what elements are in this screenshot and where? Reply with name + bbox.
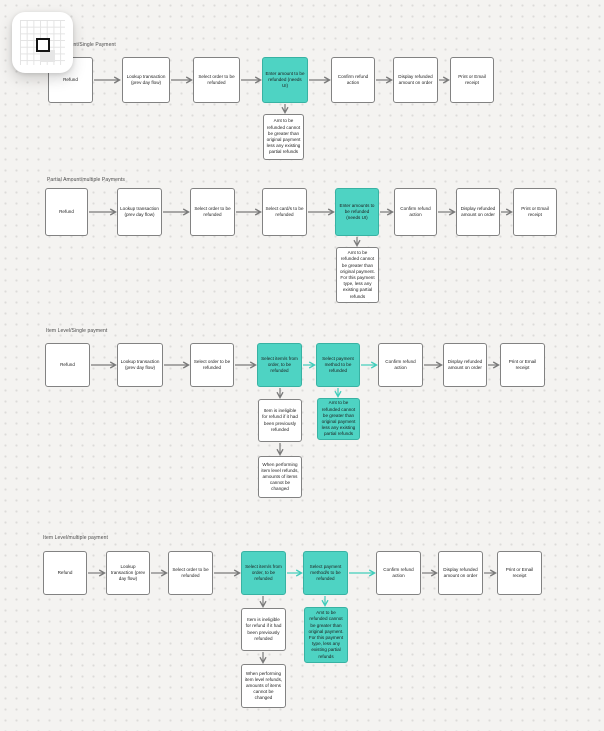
flow-node[interactable]: Refund [45,343,90,387]
note-node-highlighted[interactable]: Amt to be refunded cannot be greater tha… [317,398,360,440]
flow-node-highlighted[interactable]: Enter amount to be refunded (needs UI) [262,57,308,103]
flow-node[interactable]: Select card/s to be refunded [262,188,307,236]
flow-node-highlighted[interactable]: Select payment method to be refunded [316,343,360,387]
flow-node[interactable]: Confirm refund action [331,57,375,103]
flow-node[interactable]: Select order to be refunded [190,343,234,387]
flow-node[interactable]: Lookup transaction (prev day flow) [106,551,150,595]
flow-node[interactable]: Lookup transaction (prev day flow) [117,188,162,236]
flow-node[interactable]: Confirm refund action [394,188,437,236]
flow-node[interactable]: Refund [45,188,88,236]
flow-node[interactable]: Display refunded amount on order [393,57,438,103]
flow-node[interactable]: Display refunded amount on order [443,343,487,387]
note-node[interactable]: When performing item level refunds, amou… [258,456,302,498]
note-node[interactable]: Item is ineligible for refund if it had … [258,399,302,442]
note-node[interactable]: Amt to be refunded cannot be greater tha… [263,114,304,160]
flow-node-highlighted[interactable]: Select item/s from order, to be refunded [241,551,286,595]
flow-node[interactable]: Display refunded amount on order [438,551,483,595]
flow-node[interactable]: Print or Email receipt [450,57,494,103]
flow-node[interactable]: Refund [43,551,87,595]
flow-title[interactable]: Item Level/multiple payment [43,535,108,541]
flow-node-highlighted[interactable]: Select payment method/s to be refunded [303,551,348,595]
flow-title[interactable]: Partial Amount/multiple Payments [47,177,125,183]
whiteboard-canvas[interactable]: { "colors": { "canvas_bg": "#f4f3f1", "d… [0,0,604,731]
flow-node[interactable]: Confirm refund action [376,551,421,595]
flow-node[interactable]: Confirm refund action [378,343,423,387]
note-node[interactable]: When performing item level refunds, amou… [241,664,286,708]
flow-node[interactable]: Select order to be refunded [168,551,213,595]
flow-node-highlighted[interactable]: Enter amounts to be refunded (needs UI) [335,188,379,236]
flow-node[interactable]: Lookup transaction (prev day flow) [122,57,170,103]
grid-overview-widget[interactable] [12,12,73,73]
flow-node[interactable]: Display refunded amount on order [456,188,500,236]
flow-node-highlighted[interactable]: Select item/s from order, to be refunded [257,343,302,387]
flow-node[interactable]: Lookup transaction (prev day flow) [117,343,163,387]
flow-node[interactable]: Print or Email receipt [500,343,545,387]
flow-node[interactable]: Select order to be refunded [193,57,240,103]
note-node[interactable]: Item is ineligible for refund if it had … [241,608,286,651]
flow-node[interactable]: Print or Email receipt [497,551,542,595]
flow-node[interactable]: Print or Email receipt [513,188,557,236]
flow-title[interactable]: Item Level/Single payment [46,328,107,334]
flow-node[interactable]: Select order to be refunded [190,188,235,236]
note-node[interactable]: Amt to be refunded cannot be greater tha… [336,247,379,303]
note-node-highlighted[interactable]: Amt to be refunded cannot be greater tha… [304,607,348,663]
viewport-square-icon[interactable] [36,38,50,52]
